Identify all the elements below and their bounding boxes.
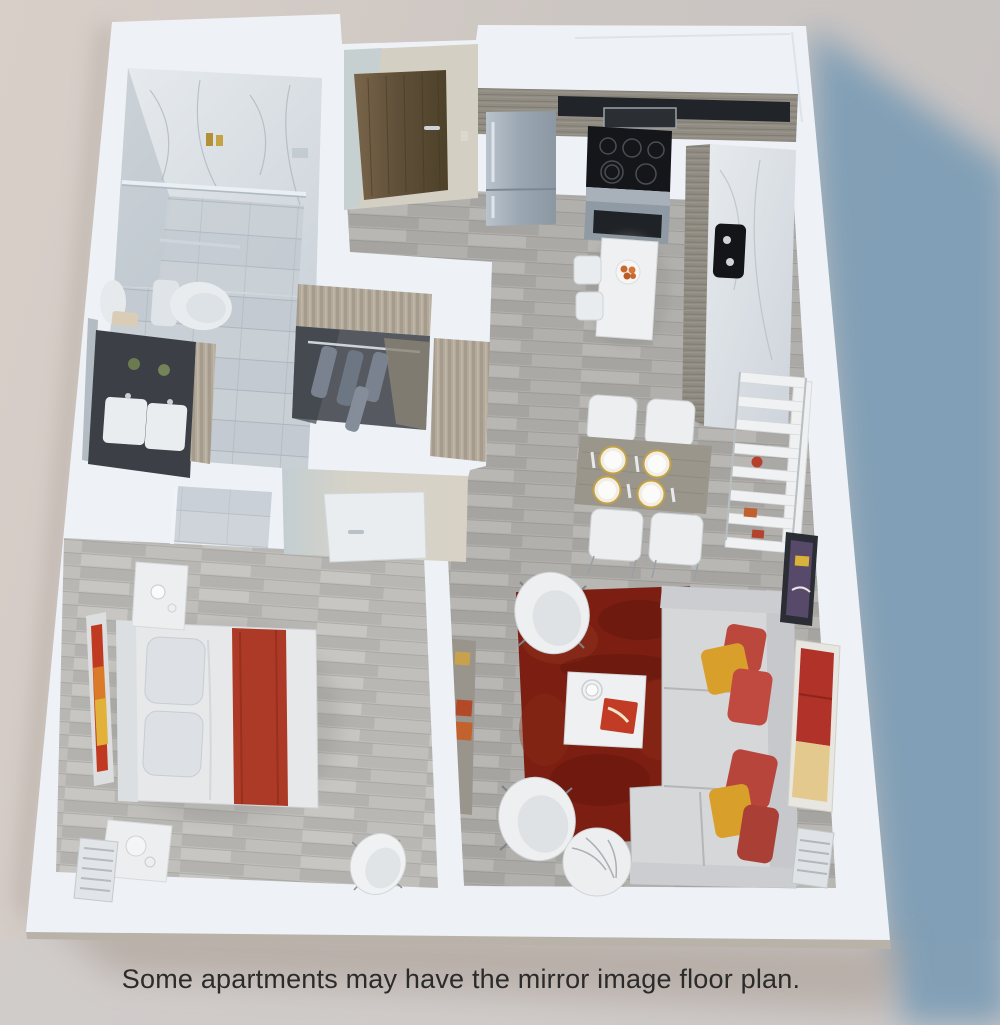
dining-chair-4 [648,512,703,566]
vanity-plant-1 [128,358,140,370]
gold-box [455,652,471,666]
cup [586,684,598,696]
art-frame-small [780,532,818,626]
shelf-decor-book [752,529,765,538]
pillow-red-2 [726,667,773,726]
place-setting [600,447,627,474]
sink-basin-2 [144,403,187,452]
bedroom-radiator [74,838,118,902]
caption: Some apartments may have the mirror imag… [0,964,1000,995]
refrigerator [486,111,556,226]
faucet-2 [167,399,173,405]
closet-wall-right [430,338,490,462]
coffee-table [564,672,646,748]
desk-lamp [126,836,146,856]
console-book-1 [455,699,472,716]
dining-chair-1 [586,394,637,443]
light-switch [461,131,468,141]
towels [111,311,138,328]
bed [116,620,318,808]
art-frame-large [788,640,840,812]
art-paint-yellow [795,556,810,567]
bedroom-door [324,492,426,562]
bedroom-door-handle [348,530,364,534]
dining-chair-2 [644,398,695,447]
living-radiator [792,828,834,888]
bedroom-doorway-floor [172,486,272,548]
shampoo-bottle [206,133,213,146]
nightstand [132,562,188,630]
place-setting [644,451,671,478]
headboard [116,620,138,802]
red-book [600,698,638,734]
place-setting [594,477,621,504]
sink-basin-1 [102,397,147,446]
entry [344,44,478,210]
faucet-1 [125,393,131,399]
kitchen-sink [713,223,747,279]
shampoo-bottle-2 [216,135,223,146]
pillow-1 [144,637,205,706]
counter-marble [704,144,796,434]
dining-chair-3 [588,508,643,562]
shower-head [292,148,308,158]
console-book-2 [454,721,472,740]
round-side-table [563,828,631,896]
microwave [604,108,676,128]
mug [151,585,165,599]
shelf-decor-red [752,457,763,468]
place-setting [638,481,665,508]
art-yellow-band [95,698,108,746]
shelf-decor-orange [744,507,758,517]
vanity-plant-2 [158,364,170,376]
floor-plan-scene [0,0,1000,1025]
door-handle [424,126,440,130]
floor-plan-rendering: Some apartments may have the mirror imag… [0,0,1000,1025]
art-cream-panel [792,741,830,802]
stool-2 [576,292,603,320]
stool-1 [574,256,601,284]
range [584,126,672,244]
fruit-bowl [616,260,640,284]
pillow-2 [142,711,203,778]
caption-text: Some apartments may have the mirror imag… [122,964,800,994]
